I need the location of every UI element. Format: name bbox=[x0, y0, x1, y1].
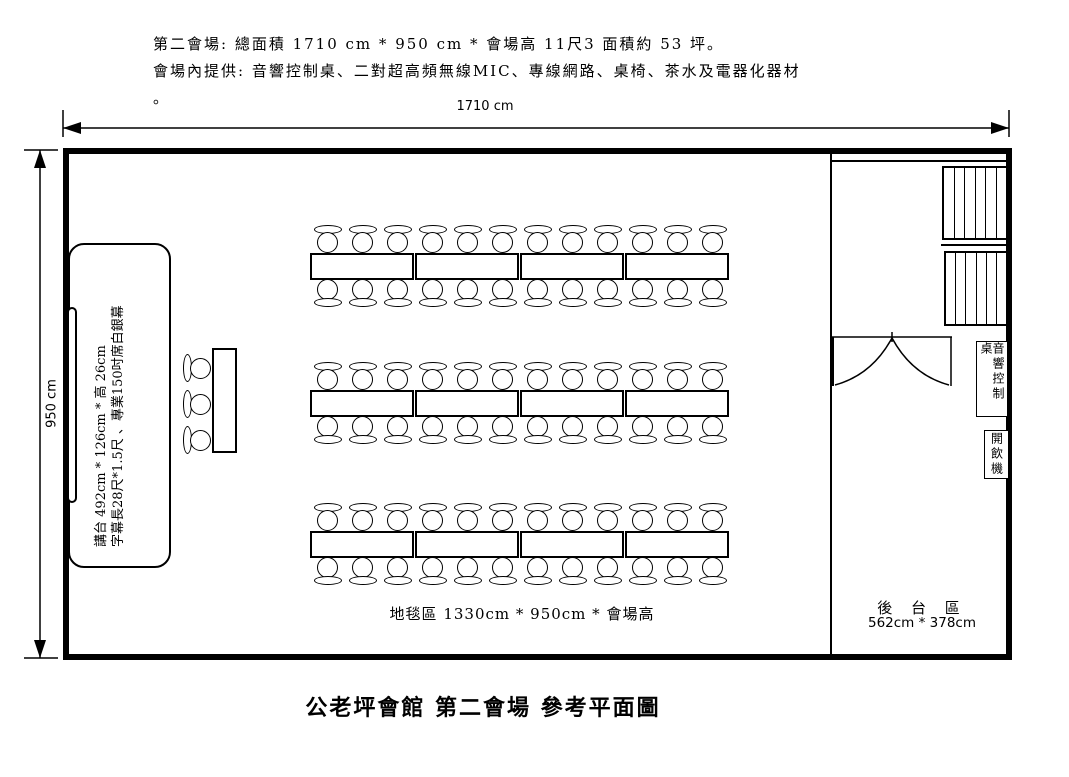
chair-seat bbox=[422, 557, 443, 578]
chair-seat bbox=[632, 510, 653, 531]
chair-seat bbox=[422, 279, 443, 300]
chair-seat bbox=[352, 279, 373, 300]
chair-back bbox=[594, 435, 622, 444]
chair bbox=[419, 279, 447, 307]
chair-seat bbox=[457, 279, 478, 300]
chair bbox=[454, 362, 482, 390]
rack-slot bbox=[944, 168, 955, 238]
chair bbox=[349, 225, 377, 253]
chair-seat bbox=[527, 416, 548, 437]
chair-back bbox=[419, 576, 447, 585]
chair-back bbox=[524, 576, 552, 585]
double-door-icon bbox=[826, 332, 958, 392]
chair bbox=[349, 362, 377, 390]
chair bbox=[524, 503, 552, 531]
banquet-table bbox=[415, 531, 519, 558]
chair-back bbox=[419, 435, 447, 444]
chair bbox=[183, 390, 211, 418]
chair-back bbox=[489, 435, 517, 444]
width-dimension-arrow bbox=[56, 106, 1016, 140]
chair-seat bbox=[632, 232, 653, 253]
chair-seat bbox=[492, 279, 513, 300]
chair-seat bbox=[317, 369, 338, 390]
chair bbox=[314, 362, 342, 390]
chair-seat bbox=[527, 557, 548, 578]
chair-seat bbox=[352, 510, 373, 531]
chair bbox=[314, 279, 342, 307]
chair bbox=[489, 503, 517, 531]
chair-seat bbox=[352, 369, 373, 390]
chair bbox=[664, 225, 692, 253]
chair bbox=[349, 416, 377, 444]
stage-label: 講台 492cm * 126cm * 高 26cm 字幕長28尺*1.5尺 、專… bbox=[93, 261, 129, 547]
chair-back bbox=[594, 576, 622, 585]
chair-seat bbox=[667, 557, 688, 578]
chair-seat bbox=[597, 557, 618, 578]
chair-seat bbox=[632, 557, 653, 578]
rack-slot bbox=[986, 168, 997, 238]
chair-back bbox=[629, 298, 657, 307]
chair bbox=[699, 279, 727, 307]
chair-seat bbox=[317, 416, 338, 437]
chair-seat bbox=[562, 510, 583, 531]
chair bbox=[524, 557, 552, 585]
chair-seat bbox=[597, 369, 618, 390]
chair-seat bbox=[457, 232, 478, 253]
chair bbox=[489, 362, 517, 390]
chair-seat bbox=[597, 416, 618, 437]
chair-seat bbox=[387, 557, 408, 578]
page-title: 公老坪會館 第二會場 參考平面圖 bbox=[233, 690, 733, 722]
banquet-table bbox=[625, 390, 729, 417]
chair-back bbox=[489, 298, 517, 307]
rack-slot bbox=[946, 253, 956, 324]
chair-seat bbox=[190, 430, 211, 451]
rack-slot bbox=[997, 168, 1007, 238]
rack-slot bbox=[976, 168, 987, 238]
banquet-table bbox=[310, 531, 414, 558]
chair-back bbox=[629, 576, 657, 585]
chair bbox=[349, 557, 377, 585]
chair-seat bbox=[702, 232, 723, 253]
chair-seat bbox=[527, 369, 548, 390]
projection-screen bbox=[67, 307, 77, 503]
chair bbox=[419, 557, 447, 585]
chair-back bbox=[699, 298, 727, 307]
chair-back bbox=[454, 298, 482, 307]
chair-back bbox=[629, 435, 657, 444]
chair-back bbox=[314, 298, 342, 307]
stage-label-line-2: 字幕長28尺*1.5尺 、專業150吋席白銀幕 bbox=[110, 261, 127, 547]
storage-rack bbox=[942, 166, 1008, 240]
chair bbox=[314, 503, 342, 531]
banquet-table bbox=[625, 531, 729, 558]
chair bbox=[454, 279, 482, 307]
chair-seat bbox=[190, 394, 211, 415]
chair bbox=[629, 279, 657, 307]
chair bbox=[384, 416, 412, 444]
chair bbox=[419, 225, 447, 253]
banquet-table bbox=[415, 390, 519, 417]
chair bbox=[454, 557, 482, 585]
chair-back bbox=[594, 298, 622, 307]
header-line-2: 會場內提供: 音響控制桌、二對超高頻無線MIC、專線網路、桌椅、茶水及電器化器材 bbox=[153, 58, 801, 85]
chair bbox=[314, 225, 342, 253]
chair bbox=[349, 279, 377, 307]
chair-seat bbox=[492, 510, 513, 531]
chair bbox=[629, 503, 657, 531]
chair bbox=[524, 416, 552, 444]
floor-plan: 第二會場: 總面積 1710 cm * 950 cm * 會場高 11尺3 面積… bbox=[0, 0, 1069, 777]
rack-divider-line bbox=[941, 244, 1008, 246]
chair-back bbox=[349, 435, 377, 444]
chair-seat bbox=[422, 416, 443, 437]
chair-seat bbox=[422, 369, 443, 390]
chair bbox=[594, 503, 622, 531]
chair bbox=[314, 416, 342, 444]
chair-seat bbox=[702, 369, 723, 390]
chair bbox=[349, 503, 377, 531]
chair bbox=[524, 225, 552, 253]
header-line-1: 第二會場: 總面積 1710 cm * 950 cm * 會場高 11尺3 面積… bbox=[153, 31, 801, 58]
chair bbox=[314, 557, 342, 585]
height-dimension-arrow bbox=[22, 142, 62, 668]
banquet-table bbox=[310, 390, 414, 417]
chair-seat bbox=[562, 557, 583, 578]
rack-slot bbox=[965, 168, 976, 238]
chair-back bbox=[664, 576, 692, 585]
chair-back bbox=[454, 576, 482, 585]
chair bbox=[419, 362, 447, 390]
rack-slot bbox=[966, 253, 976, 324]
chair-seat bbox=[457, 557, 478, 578]
chair-seat bbox=[457, 416, 478, 437]
chair bbox=[384, 503, 412, 531]
chair-seat bbox=[422, 232, 443, 253]
chair-back bbox=[349, 298, 377, 307]
banquet-table bbox=[625, 253, 729, 280]
chair bbox=[419, 503, 447, 531]
chair-back bbox=[559, 298, 587, 307]
chair bbox=[664, 557, 692, 585]
chair-seat bbox=[597, 232, 618, 253]
chair bbox=[594, 557, 622, 585]
chair-seat bbox=[492, 416, 513, 437]
chair-seat bbox=[387, 510, 408, 531]
rack-slot bbox=[997, 253, 1006, 324]
water-dispenser-label: 開飲機 bbox=[991, 432, 1003, 477]
chair bbox=[524, 362, 552, 390]
chair-back bbox=[384, 298, 412, 307]
chair-back bbox=[314, 576, 342, 585]
chair-seat bbox=[352, 232, 373, 253]
chair-seat bbox=[387, 279, 408, 300]
chair-seat bbox=[317, 279, 338, 300]
chair-seat bbox=[317, 510, 338, 531]
chair bbox=[594, 416, 622, 444]
chair bbox=[629, 225, 657, 253]
chair-seat bbox=[457, 369, 478, 390]
chair-seat bbox=[597, 279, 618, 300]
chair-back bbox=[559, 576, 587, 585]
chair bbox=[594, 225, 622, 253]
chair bbox=[524, 279, 552, 307]
banquet-table bbox=[520, 253, 624, 280]
chair-seat bbox=[562, 416, 583, 437]
chair-seat bbox=[190, 358, 211, 379]
chair bbox=[454, 416, 482, 444]
chair bbox=[419, 416, 447, 444]
chair-seat bbox=[667, 416, 688, 437]
chair bbox=[384, 279, 412, 307]
chair-seat bbox=[667, 369, 688, 390]
chair bbox=[559, 362, 587, 390]
chair-seat bbox=[562, 369, 583, 390]
chair bbox=[594, 362, 622, 390]
chair-seat bbox=[702, 557, 723, 578]
chair-back bbox=[664, 298, 692, 307]
chair-back bbox=[419, 298, 447, 307]
chair-seat bbox=[667, 279, 688, 300]
banquet-table bbox=[520, 390, 624, 417]
partition-wall bbox=[830, 154, 832, 657]
stage-label-line-1: 講台 492cm * 126cm * 高 26cm bbox=[93, 261, 110, 547]
chair bbox=[699, 416, 727, 444]
chair bbox=[559, 416, 587, 444]
chair-back bbox=[454, 435, 482, 444]
chair-seat bbox=[597, 510, 618, 531]
chair-back bbox=[314, 435, 342, 444]
chair bbox=[489, 416, 517, 444]
rack-slot bbox=[977, 253, 987, 324]
chair-back bbox=[524, 298, 552, 307]
chair bbox=[594, 279, 622, 307]
chair-seat bbox=[667, 510, 688, 531]
chair-seat bbox=[632, 279, 653, 300]
chair bbox=[664, 279, 692, 307]
chair bbox=[489, 557, 517, 585]
chair bbox=[559, 279, 587, 307]
chair bbox=[699, 557, 727, 585]
chair bbox=[699, 225, 727, 253]
chair bbox=[489, 279, 517, 307]
chair bbox=[183, 426, 211, 454]
rack-slot bbox=[955, 168, 966, 238]
chair bbox=[454, 225, 482, 253]
chair bbox=[664, 416, 692, 444]
chair bbox=[454, 503, 482, 531]
chair bbox=[664, 503, 692, 531]
chair-seat bbox=[492, 232, 513, 253]
chair bbox=[384, 225, 412, 253]
chair-seat bbox=[667, 232, 688, 253]
chair-seat bbox=[527, 232, 548, 253]
chair-seat bbox=[352, 557, 373, 578]
chair bbox=[699, 362, 727, 390]
chair-seat bbox=[317, 232, 338, 253]
sound-control-desk: 音響控制桌 bbox=[976, 341, 1008, 417]
chair-seat bbox=[632, 369, 653, 390]
banquet-table bbox=[310, 253, 414, 280]
chair-seat bbox=[562, 232, 583, 253]
chair-back bbox=[524, 435, 552, 444]
chair bbox=[183, 354, 211, 382]
chair-seat bbox=[422, 510, 443, 531]
chair-seat bbox=[492, 369, 513, 390]
rack-slot bbox=[956, 253, 966, 324]
chair bbox=[629, 416, 657, 444]
chair bbox=[559, 503, 587, 531]
chair-seat bbox=[492, 557, 513, 578]
chair-seat bbox=[632, 416, 653, 437]
chair bbox=[489, 225, 517, 253]
chair-back bbox=[384, 435, 412, 444]
chair-seat bbox=[317, 557, 338, 578]
backstage-size-label: 562cm * 378cm bbox=[832, 615, 1012, 631]
chair-seat bbox=[387, 369, 408, 390]
chair-seat bbox=[387, 232, 408, 253]
chair bbox=[384, 362, 412, 390]
chair-seat bbox=[702, 510, 723, 531]
chair bbox=[629, 557, 657, 585]
banquet-table bbox=[415, 253, 519, 280]
chair-back bbox=[489, 576, 517, 585]
sound-control-desk-label: 音響控制桌 bbox=[980, 342, 1004, 416]
chair-seat bbox=[527, 279, 548, 300]
chair-seat bbox=[352, 416, 373, 437]
carpet-area-label: 地毯區 1330cm * 950cm * 會場高 bbox=[342, 603, 702, 624]
chair-back bbox=[699, 576, 727, 585]
chair bbox=[664, 362, 692, 390]
chair-seat bbox=[527, 510, 548, 531]
head-table bbox=[212, 348, 237, 453]
chair-seat bbox=[387, 416, 408, 437]
rack-slot bbox=[987, 253, 997, 324]
chair-seat bbox=[457, 510, 478, 531]
water-dispenser: 開飲機 bbox=[984, 430, 1009, 479]
banquet-table bbox=[520, 531, 624, 558]
chair bbox=[699, 503, 727, 531]
storage-rack bbox=[944, 251, 1008, 326]
chair bbox=[559, 225, 587, 253]
chair-seat bbox=[702, 416, 723, 437]
chair-back bbox=[559, 435, 587, 444]
chair bbox=[559, 557, 587, 585]
backstage-inner-wall-line bbox=[832, 160, 1008, 162]
chair-seat bbox=[702, 279, 723, 300]
chair bbox=[384, 557, 412, 585]
chair-back bbox=[384, 576, 412, 585]
chair-seat bbox=[562, 279, 583, 300]
chair-back bbox=[664, 435, 692, 444]
chair-back bbox=[699, 435, 727, 444]
chair bbox=[629, 362, 657, 390]
chair-back bbox=[349, 576, 377, 585]
